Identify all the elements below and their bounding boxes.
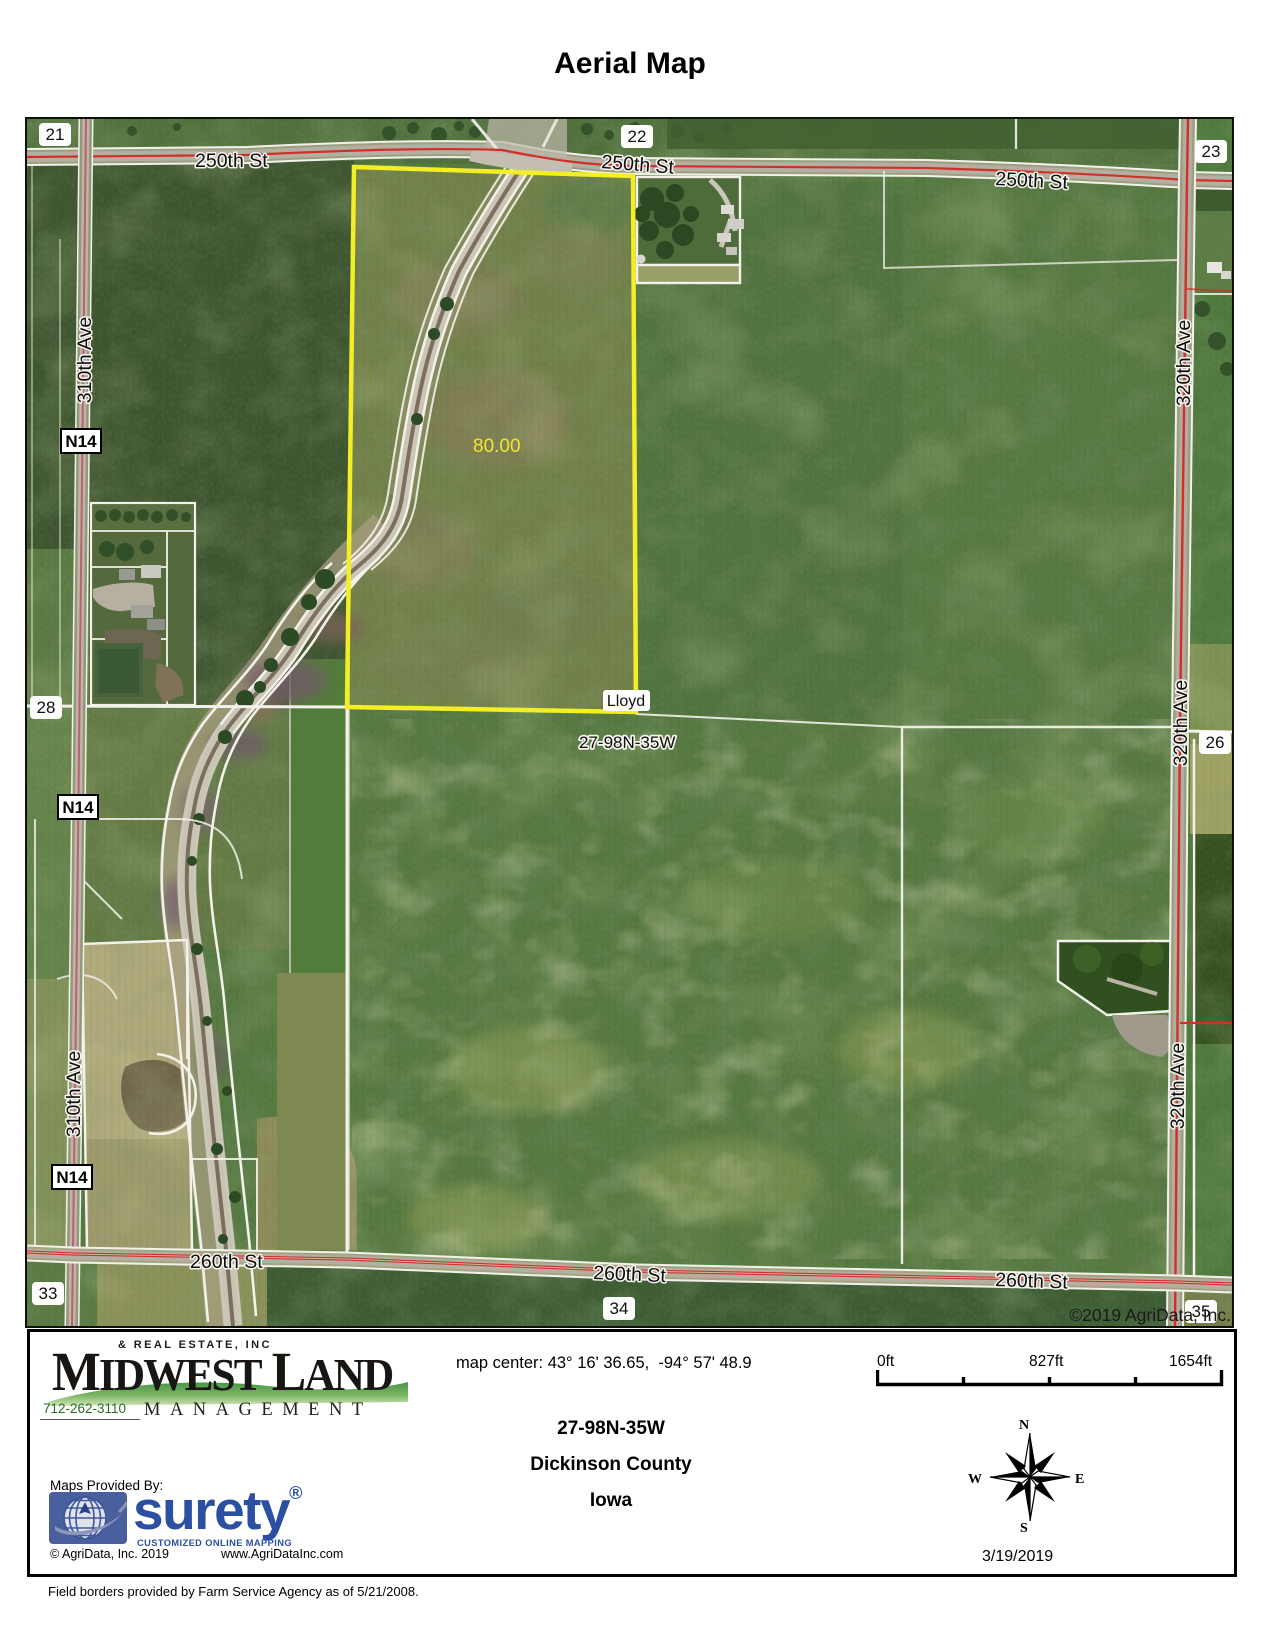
- svg-text:260th St: 260th St: [995, 1269, 1069, 1294]
- svg-text:N14: N14: [62, 798, 94, 817]
- svg-text:310th Ave: 310th Ave: [63, 1051, 85, 1137]
- svg-text:Lloyd: Lloyd: [607, 693, 645, 710]
- svg-text:N14: N14: [65, 432, 97, 451]
- svg-text:27-98N-35W: 27-98N-35W: [579, 733, 675, 752]
- svg-text:260th St: 260th St: [593, 1262, 667, 1287]
- svg-text:320th Ave: 320th Ave: [1173, 320, 1195, 406]
- svg-text:N14: N14: [56, 1168, 88, 1187]
- svg-text:320th Ave: 320th Ave: [1170, 680, 1192, 766]
- svg-text:23: 23: [1202, 142, 1221, 161]
- svg-text:26: 26: [1206, 733, 1225, 752]
- svg-text:28: 28: [37, 698, 56, 717]
- svg-text:22: 22: [628, 127, 647, 146]
- svg-text:80.00: 80.00: [473, 436, 521, 457]
- svg-text:320th Ave: 320th Ave: [1167, 1043, 1189, 1129]
- svg-text:©2019 AgriData, Inc.: ©2019 AgriData, Inc.: [1069, 1305, 1231, 1325]
- svg-text:21: 21: [46, 125, 65, 144]
- svg-text:310th Ave: 310th Ave: [74, 317, 96, 403]
- svg-text:33: 33: [39, 1284, 58, 1303]
- svg-text:250th St: 250th St: [195, 150, 268, 172]
- svg-text:260th St: 260th St: [190, 1251, 263, 1273]
- svg-text:34: 34: [610, 1299, 629, 1318]
- svg-text:250th St: 250th St: [995, 168, 1069, 194]
